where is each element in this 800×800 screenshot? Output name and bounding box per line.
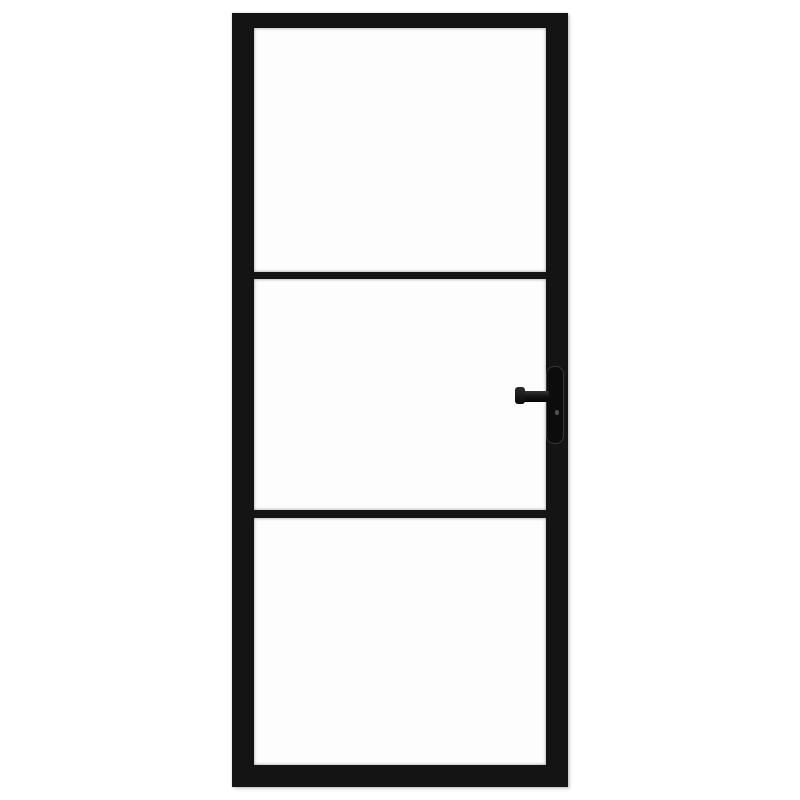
glass-panel-top <box>254 28 546 272</box>
door-frame-interior <box>254 28 546 765</box>
keyhole-dot <box>555 410 559 415</box>
handle-backplate <box>546 366 564 444</box>
product-photo-background <box>0 0 800 800</box>
glass-door <box>232 13 568 787</box>
glass-panel-bottom <box>254 518 546 765</box>
muntin-bar-lower <box>254 510 546 518</box>
glass-panel-middle <box>254 279 546 510</box>
handle-lever-tip <box>515 387 525 404</box>
handle-lever <box>523 391 549 402</box>
muntin-bar-upper <box>254 272 546 279</box>
